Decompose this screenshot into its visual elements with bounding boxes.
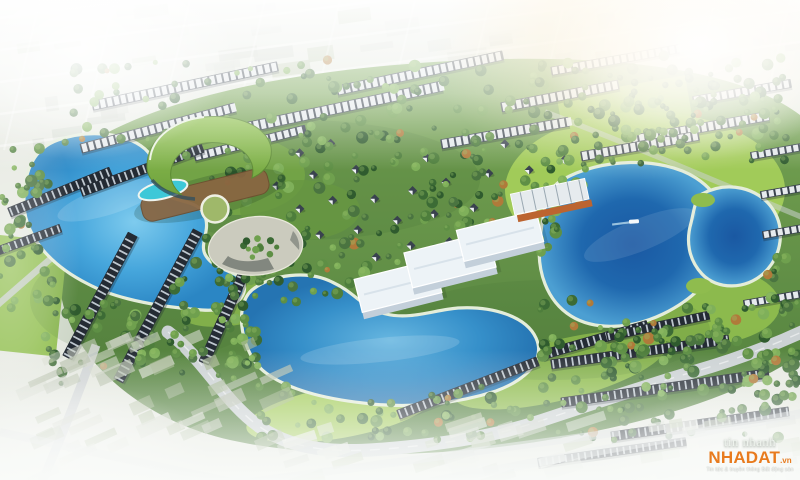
tree-highlight <box>794 300 798 304</box>
tree-highlight <box>231 339 235 343</box>
tree-highlight <box>476 192 480 196</box>
tree-highlight <box>455 221 461 227</box>
tree-highlight <box>225 322 229 326</box>
tree-highlight <box>131 312 136 317</box>
tree-highlight <box>191 258 197 264</box>
tree-highlight <box>724 328 728 332</box>
tree-highlight <box>349 206 355 212</box>
tree-highlight <box>430 186 433 189</box>
tree-highlight <box>598 326 601 329</box>
tree-highlight <box>713 331 719 337</box>
tree-highlight <box>715 318 719 322</box>
tree-highlight <box>335 263 338 266</box>
tree-highlight <box>293 298 298 303</box>
tree-highlight <box>215 309 218 312</box>
tree-highlight <box>617 344 623 350</box>
tree-highlight <box>377 231 380 234</box>
tree-highlight <box>178 341 181 344</box>
tree-highlight <box>422 212 428 218</box>
tree-highlight <box>498 192 501 195</box>
tree-highlight <box>167 339 171 343</box>
tree-highlight <box>408 214 411 217</box>
tree-highlight <box>239 301 244 306</box>
palm-tree <box>254 235 261 242</box>
tree-highlight <box>763 329 768 334</box>
tree-highlight <box>587 300 590 303</box>
tree-highlight <box>773 254 778 259</box>
tree-highlight <box>540 300 545 305</box>
tree-highlight <box>289 282 294 287</box>
lake-neck-green <box>686 278 712 294</box>
tree-highlight <box>203 235 208 240</box>
tree-highlight <box>615 333 620 338</box>
tree-highlight <box>634 337 638 341</box>
tree-highlight <box>171 331 175 335</box>
tree-highlight <box>348 191 353 196</box>
tree-highlight <box>532 183 536 187</box>
tree-highlight <box>659 329 664 334</box>
tree-highlight <box>287 212 292 217</box>
tree-highlight <box>780 309 783 312</box>
tree-highlight <box>115 300 119 304</box>
round-garden-pad <box>202 196 229 223</box>
masterplan-scene <box>0 0 800 480</box>
tree-highlight <box>212 303 217 308</box>
tree-highlight <box>698 335 702 339</box>
aerial-masterplan-rendering: tin nhanh NHADAT.vn Tin tức & truyền thô… <box>0 0 800 480</box>
tree-highlight <box>183 326 186 329</box>
tree-highlight <box>492 194 495 197</box>
tree-highlight <box>229 285 234 290</box>
tree-highlight <box>252 328 257 333</box>
tree-highlight <box>672 337 677 342</box>
tree-highlight <box>317 260 323 266</box>
tree-highlight <box>540 340 546 346</box>
tree-highlight <box>707 306 712 311</box>
tree-highlight <box>267 281 270 284</box>
tree-highlight <box>781 254 786 259</box>
tree-highlight <box>636 328 639 331</box>
tree-highlight <box>219 317 223 321</box>
haze-bottom <box>0 350 800 480</box>
tree-highlight <box>176 278 181 283</box>
tree-highlight <box>354 177 357 180</box>
tree-highlight <box>183 317 187 321</box>
tree-highlight <box>611 343 616 348</box>
tree-highlight <box>570 345 573 348</box>
lake-neck-green <box>691 193 715 207</box>
tree-highlight <box>357 240 361 244</box>
tree-highlight <box>784 303 789 308</box>
palm-tree <box>243 237 251 245</box>
tree-highlight <box>323 291 326 294</box>
tree-highlight <box>571 323 575 327</box>
palm-tree <box>267 251 274 258</box>
tree-highlight <box>703 304 707 308</box>
tree-highlight <box>93 323 98 328</box>
tree-highlight <box>253 293 256 296</box>
tree-highlight <box>259 280 262 283</box>
tree-highlight <box>549 216 553 220</box>
tree-highlight <box>325 267 328 270</box>
tree-highlight <box>311 288 315 292</box>
tree-highlight <box>339 253 342 256</box>
tree-highlight <box>241 315 246 320</box>
tree-highlight <box>100 300 104 304</box>
tree-highlight <box>397 243 400 246</box>
tree-highlight <box>332 289 338 295</box>
tree-highlight <box>759 309 765 315</box>
tree-highlight <box>596 341 602 347</box>
tree-highlight <box>182 309 188 315</box>
tree-highlight <box>395 259 398 262</box>
tree-highlight <box>437 192 441 196</box>
tree-highlight <box>275 277 280 282</box>
haze-top-right <box>540 0 800 160</box>
tree-highlight <box>324 174 330 180</box>
tree-highlight <box>447 213 450 216</box>
tree-highlight <box>330 245 333 248</box>
tree-highlight <box>359 268 365 274</box>
tree-highlight <box>733 337 738 342</box>
tree-highlight <box>226 274 230 278</box>
tree-highlight <box>445 225 448 228</box>
tree-highlight <box>170 284 176 290</box>
tree-highlight <box>568 296 573 301</box>
tree-highlight <box>742 306 745 309</box>
tree-highlight <box>231 292 236 297</box>
tree-highlight <box>217 268 220 271</box>
tree-highlight <box>190 308 195 313</box>
tree-highlight <box>391 226 395 230</box>
tree-highlight <box>450 198 455 203</box>
boat-hull <box>629 219 639 224</box>
tree-highlight <box>549 335 553 339</box>
tree-highlight <box>659 339 662 342</box>
tree-highlight <box>544 183 547 186</box>
tree-highlight <box>749 305 752 308</box>
tree-highlight <box>555 227 558 230</box>
tree-highlight <box>651 321 654 324</box>
tree-highlight <box>772 269 775 272</box>
palm-tree <box>267 237 274 244</box>
tree-highlight <box>343 211 348 216</box>
tree-highlight <box>430 180 434 184</box>
tree-highlight <box>216 277 221 282</box>
tree-highlight <box>302 231 307 236</box>
tree-highlight <box>85 310 90 315</box>
tree-highlight <box>538 308 541 311</box>
tree-highlight <box>276 193 280 197</box>
tree-highlight <box>428 198 434 204</box>
tree-highlight <box>231 315 236 320</box>
tree-highlight <box>652 329 655 332</box>
tree-highlight <box>555 340 560 345</box>
tree-highlight <box>706 331 710 335</box>
palm-tree <box>252 246 259 253</box>
tree-highlight <box>683 304 689 310</box>
tree-highlight <box>419 191 424 196</box>
tree-highlight <box>644 334 650 340</box>
tree-highlight <box>772 295 776 299</box>
tree-highlight <box>543 219 546 222</box>
tree-highlight <box>500 181 504 185</box>
tree-highlight <box>443 182 446 185</box>
tree-highlight <box>98 312 102 316</box>
tree-highlight <box>238 335 244 341</box>
tree-highlight <box>460 207 465 212</box>
tree-highlight <box>281 297 285 301</box>
tree-highlight <box>790 323 793 326</box>
tree-highlight <box>127 321 132 326</box>
tree-highlight <box>362 214 366 218</box>
tree-highlight <box>180 302 185 307</box>
tree-highlight <box>686 336 692 342</box>
tree-highlight <box>346 278 351 283</box>
tree-highlight <box>764 271 769 276</box>
tree-highlight <box>722 340 727 345</box>
tree-highlight <box>609 328 612 331</box>
tree-highlight <box>623 319 627 323</box>
tree-highlight <box>111 303 115 307</box>
palm-tree <box>274 245 279 250</box>
tree-highlight <box>303 264 308 269</box>
tree-highlight <box>340 239 346 245</box>
tree-highlight <box>628 342 632 346</box>
tree-highlight <box>349 235 352 238</box>
tree-highlight <box>315 183 321 189</box>
palm-tree <box>250 254 255 259</box>
tree-highlight <box>386 254 389 257</box>
tree-highlight <box>305 226 308 229</box>
tree-highlight <box>732 315 737 320</box>
